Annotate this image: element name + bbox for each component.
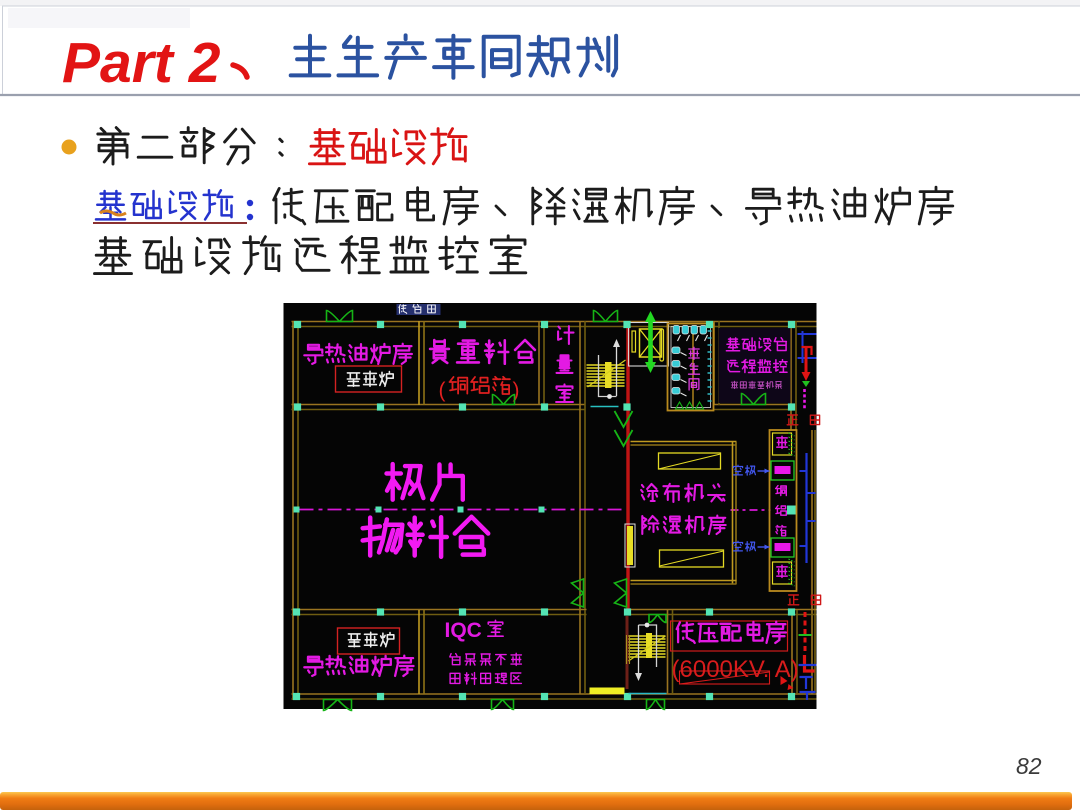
svg-text:Part 2: Part 2 <box>62 31 221 95</box>
svg-text:(: ( <box>439 379 446 402</box>
svg-text:): ) <box>513 379 520 402</box>
svg-text:(6000KV. A): (6000KV. A) <box>672 656 799 683</box>
svg-text:IQC: IQC <box>445 619 482 642</box>
svg-text:82: 82 <box>1016 753 1042 779</box>
